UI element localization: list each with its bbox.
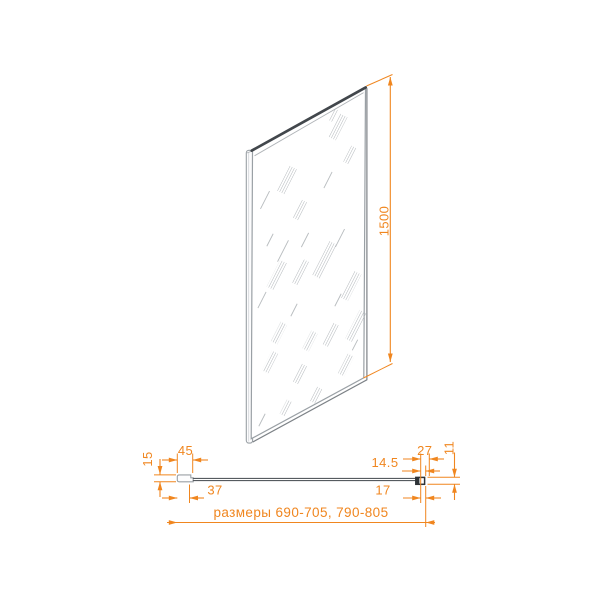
dim-label-1500: 1500 <box>377 206 392 237</box>
arrowhead <box>388 77 393 86</box>
arrowhead <box>452 469 457 478</box>
dim-label-45: 45 <box>178 443 193 458</box>
arrowhead <box>158 482 163 491</box>
arrowhead <box>190 496 199 501</box>
wall-profile-section <box>177 475 193 482</box>
arrowhead <box>412 496 421 501</box>
technical-drawing: 1500 45 15 37 <box>0 0 600 600</box>
arrowhead <box>388 354 393 363</box>
drawing-canvas: 1500 45 15 37 <box>0 0 600 600</box>
dim-label-17: 17 <box>375 483 390 498</box>
dimension-overall-width: размеры 690-705, 790-805 <box>167 505 435 525</box>
arrowhead <box>452 484 457 493</box>
dim-label-14-5: 14.5 <box>372 455 399 470</box>
arrowhead <box>426 496 435 501</box>
dim-label-overall-range: размеры 690-705, 790-805 <box>214 505 389 520</box>
dim-label-11: 11 <box>442 441 457 455</box>
arrowhead <box>412 469 421 474</box>
dim-label-15: 15 <box>140 451 155 466</box>
arrowhead <box>426 520 435 525</box>
dimension-height-1500: 1500 <box>364 75 393 379</box>
dim-label-27: 27 <box>417 443 432 458</box>
dimension-glass-offset-37: 37 <box>162 483 223 504</box>
dimension-profile-45: 45 <box>162 443 208 473</box>
panel-isometric-view <box>246 87 367 443</box>
arrowhead <box>426 469 435 474</box>
arrowhead <box>158 466 163 475</box>
arrowhead <box>193 458 202 463</box>
arrowhead <box>169 496 178 501</box>
end-bracket-clamp <box>416 477 420 484</box>
arrowhead <box>169 458 178 463</box>
dim-label-37: 37 <box>207 483 222 498</box>
arrowhead <box>169 520 178 525</box>
dimension-bracket-27: 27 <box>403 443 444 503</box>
